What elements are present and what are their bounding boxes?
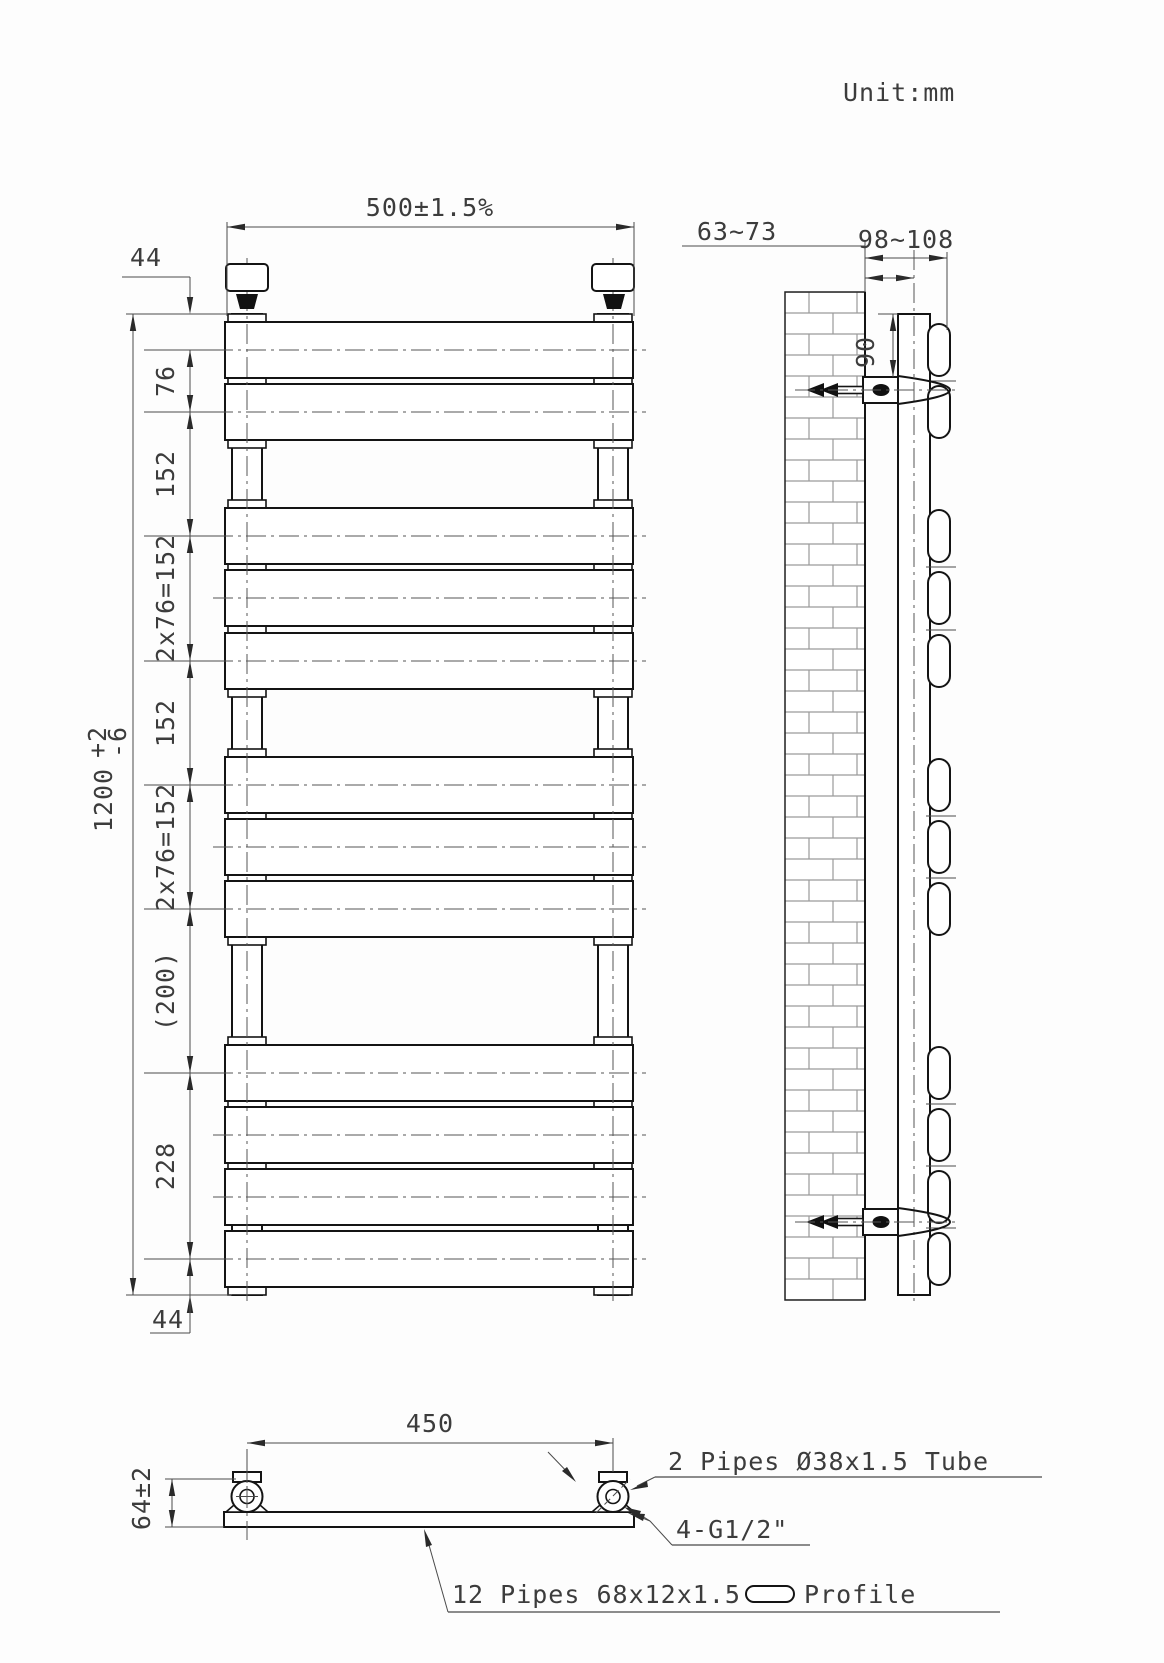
- brick-wall: [785, 292, 865, 1300]
- front-view: [213, 258, 646, 1302]
- dim-wall-to-front-label: 98~108: [858, 225, 954, 254]
- left-grommet: [236, 294, 258, 309]
- dim-height-label: 1200: [89, 768, 118, 832]
- dim-gap2-label: 152: [151, 699, 180, 747]
- drawing-canvas: Unit:mm: [0, 0, 1164, 1663]
- unit-label: Unit:mm: [843, 78, 955, 107]
- dim-height-tol-minus: -6: [103, 726, 132, 758]
- dim-bracket-offset-label: 90: [851, 336, 880, 368]
- dim-gap1-label: 152: [151, 450, 180, 498]
- dim-gap3-label: (200): [151, 951, 180, 1031]
- note-profile-suffix-label: Profile: [804, 1580, 916, 1609]
- note-connections-label: 4-G1/2": [676, 1515, 788, 1544]
- left-cap: [226, 264, 268, 291]
- right-tube-section: [596, 1472, 630, 1513]
- dim-width-label: 500±1.5%: [366, 193, 494, 222]
- dim-group1-label: 2x76=152: [151, 534, 180, 662]
- dim-depth-label: 64±2: [127, 1466, 156, 1530]
- right-grommet: [603, 294, 625, 309]
- radiator-technical-drawing: Unit:mm: [0, 0, 1164, 1663]
- dim-group2-label: 2x76=152: [151, 783, 180, 911]
- note-profile-prefix-label: 12 Pipes 68x12x1.5: [452, 1580, 741, 1609]
- side-view: 63~73 98~108 90: [682, 217, 958, 1302]
- note-connections: 4-G1/2": [624, 1507, 810, 1545]
- towel-bars: [225, 322, 633, 1287]
- dim-pitch-top-label: 76: [151, 365, 180, 397]
- dim-bottom-group-label: 228: [151, 1142, 180, 1190]
- dim-bottom-offset-label: 44: [152, 1305, 184, 1334]
- dim-tube-spacing-label: 450: [406, 1409, 454, 1438]
- bottom-view: 450 64±2 2 Pipes Ø38x1.5 Tube 4-G1/2": [127, 1409, 1042, 1612]
- panel-strip: [224, 1512, 634, 1527]
- side-bar-profiles: [928, 324, 950, 1285]
- profile-shape-icon: [746, 1586, 794, 1602]
- note-tubes-label: 2 Pipes Ø38x1.5 Tube: [668, 1447, 989, 1476]
- dim-top-offset-label: 44: [130, 243, 162, 272]
- right-cap: [592, 264, 634, 291]
- dim-wall-to-tube-center-label: 63~73: [697, 217, 777, 246]
